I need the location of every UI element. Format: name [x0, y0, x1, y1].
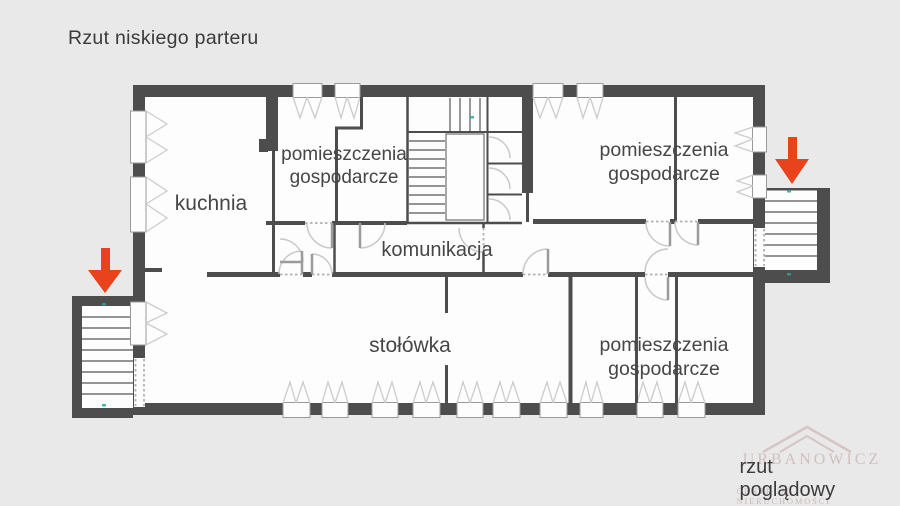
- room-label-utility-top-line2: gospodarcze: [281, 166, 407, 189]
- watermark-roof-icon: [763, 427, 851, 452]
- room-label-komunikacja: komunikacja: [381, 239, 492, 262]
- floor-plan-page: Rzut niskiego parteru kuchnia pomieszcze…: [0, 0, 900, 506]
- room-label-utility-right-line2: gospodarcze: [600, 162, 729, 186]
- room-label-utility-bottom: pomieszczenia gospodarcze: [600, 333, 729, 381]
- room-label-utility-top: pomieszczenia gospodarcze: [281, 143, 407, 189]
- room-label-utility-bottom-line2: gospodarcze: [600, 357, 729, 381]
- page-title: Rzut niskiego parteru: [68, 27, 259, 50]
- room-label-stolowka: stołówka: [369, 334, 451, 358]
- room-label-kuchnia: kuchnia: [175, 192, 247, 216]
- room-label-utility-bottom-line1: pomieszczenia: [600, 333, 729, 357]
- room-label-utility-top-line1: pomieszczenia: [281, 143, 407, 166]
- plan-caption: rzut poglądowy: [740, 456, 847, 502]
- room-label-utility-right: pomieszczenia gospodarcze: [600, 138, 729, 186]
- room-label-utility-right-line1: pomieszczenia: [600, 138, 729, 162]
- entrance-arrow-right-icon: [775, 137, 809, 184]
- entrance-arrow-left-icon: [88, 248, 122, 293]
